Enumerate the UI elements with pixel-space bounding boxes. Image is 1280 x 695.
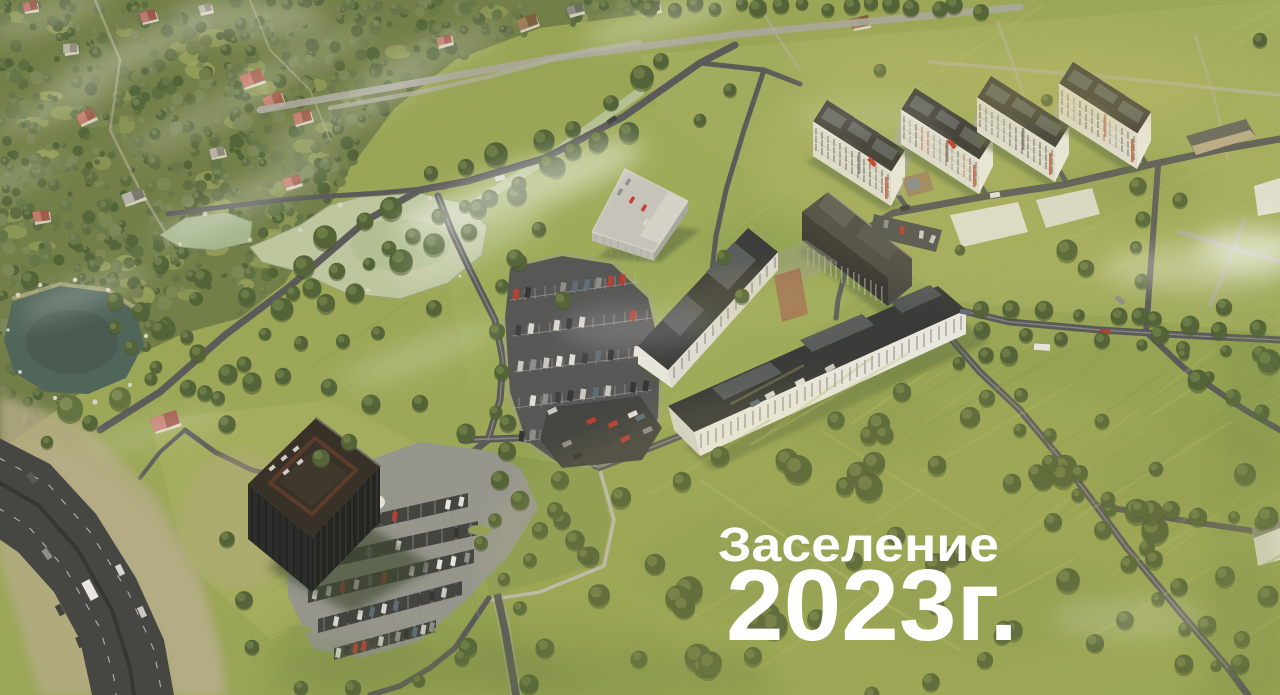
- svg-text:2023г.: 2023г.: [726, 550, 1018, 662]
